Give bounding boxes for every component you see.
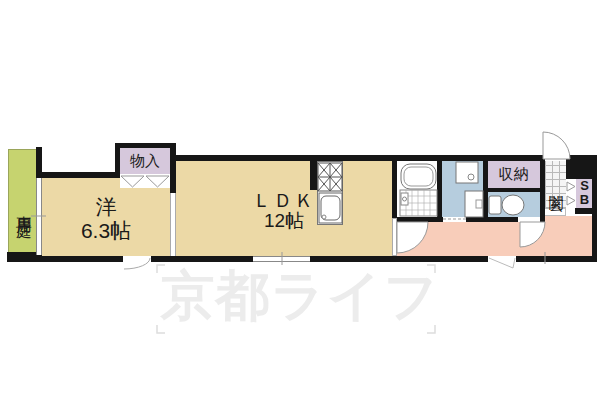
closet-door-area: [120, 174, 170, 188]
wall-bath-washroom: [437, 157, 442, 218]
bathroom: [397, 161, 437, 217]
wall-western-top: [36, 172, 120, 178]
wall-bottom-1: [7, 256, 123, 262]
hall-bottom-door-mark: [489, 258, 515, 268]
storage-label: 収納: [487, 165, 540, 184]
closet-label: 物入: [120, 152, 170, 171]
wall-partition-upper: [170, 143, 176, 193]
wall-ldk-bath: [392, 157, 397, 218]
wall-left-upper: [36, 147, 42, 178]
ldk-size: 12帖: [176, 208, 392, 234]
wall-right: [592, 157, 597, 262]
wall-kitchen-stub: [310, 161, 317, 190]
western-room-door-arc: [124, 258, 150, 269]
hallway: [397, 222, 543, 256]
entrance-step: [543, 208, 566, 216]
washroom: [442, 161, 483, 217]
entrance-door-arc: [543, 132, 570, 159]
ldk-hall-doorway: [392, 218, 397, 256]
wall-closet-top: [115, 143, 175, 148]
shoebox-letter-b: B: [576, 192, 593, 207]
wall-bottom-4: [516, 256, 597, 262]
shoebox-letter-s: S: [576, 178, 593, 193]
floor-plan: 専用庭 物入 洋 6.3帖 ＬＤＫ 12帖 収納 玄関 S B 京都ライフ: [0, 0, 600, 400]
toilet-room: [487, 192, 540, 217]
wall-storage-toilet: [487, 188, 540, 192]
western-room-size: 6.3帖: [42, 217, 170, 245]
wall-bath-hall: [397, 217, 443, 222]
wall-toilet-entrance: [540, 157, 545, 222]
garden-label: 専用庭: [10, 163, 34, 251]
hallway-entrance-side: [543, 216, 592, 256]
wall-toilet-hall: [466, 217, 518, 222]
shoebox-door-area: [566, 179, 576, 209]
watermark-text: 京都ライフ: [158, 260, 442, 332]
entrance-label: 玄関: [546, 162, 565, 206]
